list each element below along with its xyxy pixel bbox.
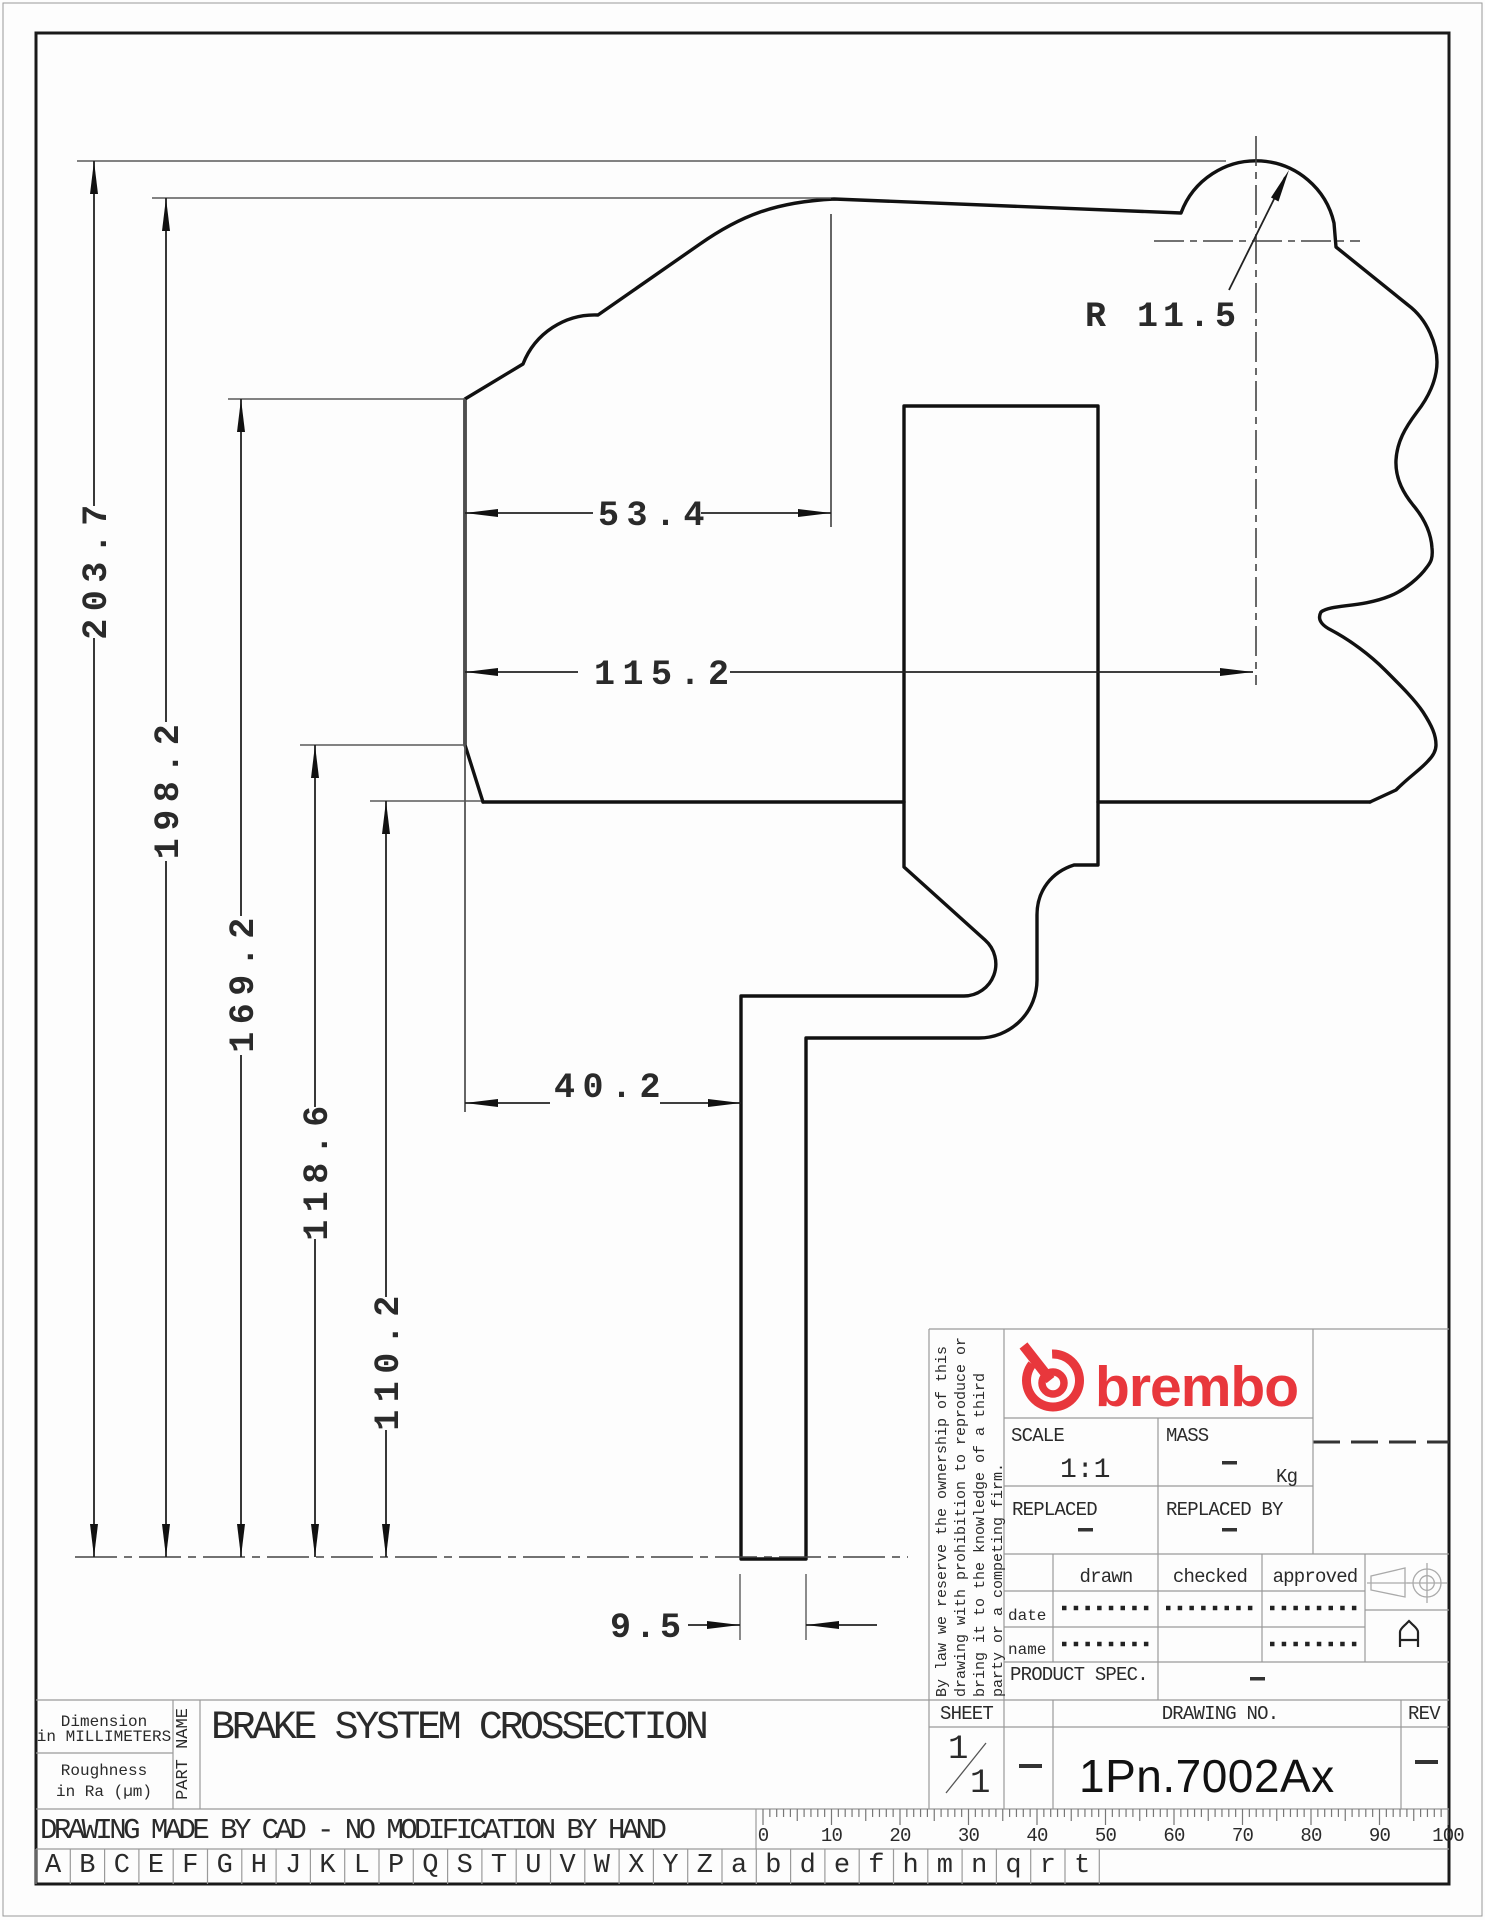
svg-text:203.7: 203.7 (77, 497, 117, 640)
svg-text:T: T (491, 1851, 507, 1881)
svg-text:By law we reserve the ownershi: By law we reserve the ownership of this (934, 1346, 951, 1697)
svg-text:E: E (148, 1851, 164, 1881)
svg-text:checked: checked (1173, 1566, 1247, 1588)
svg-text:Q: Q (422, 1851, 438, 1881)
svg-text:a: a (731, 1851, 747, 1881)
svg-text:REPLACED: REPLACED (1012, 1499, 1097, 1521)
svg-text:SCALE: SCALE (1011, 1425, 1064, 1447)
svg-text:PRODUCT SPEC.: PRODUCT SPEC. (1010, 1664, 1148, 1686)
svg-text:q: q (1005, 1851, 1021, 1881)
svg-text:drawn: drawn (1079, 1566, 1132, 1588)
svg-text:0: 0 (758, 1825, 769, 1847)
svg-text:L: L (354, 1851, 370, 1881)
svg-text:30: 30 (958, 1825, 980, 1847)
svg-text:90: 90 (1369, 1825, 1391, 1847)
svg-text:X: X (628, 1851, 644, 1881)
svg-text:MASS: MASS (1166, 1425, 1209, 1447)
svg-text:Y: Y (662, 1851, 678, 1881)
svg-text:100: 100 (1432, 1825, 1464, 1847)
svg-text:V: V (559, 1851, 576, 1881)
svg-text:PART NAME: PART NAME (174, 1708, 193, 1800)
svg-text:198.2: 198.2 (149, 717, 189, 860)
svg-text:9.5: 9.5 (610, 1608, 685, 1648)
svg-text:C: C (114, 1851, 130, 1881)
svg-text:1: 1 (970, 1765, 990, 1803)
svg-text:DRAWING MADE BY CAD - NO MODIF: DRAWING MADE BY CAD - NO MODIFICATION BY… (40, 1814, 666, 1847)
svg-text:53.4: 53.4 (598, 496, 712, 536)
svg-text:40: 40 (1026, 1825, 1048, 1847)
svg-text:1: 1 (948, 1731, 968, 1769)
svg-text:m: m (937, 1851, 953, 1881)
svg-text:name: name (1008, 1641, 1046, 1659)
svg-text:U: U (525, 1851, 541, 1881)
svg-text:H: H (251, 1851, 267, 1881)
svg-text:REV: REV (1408, 1703, 1441, 1725)
svg-text:10: 10 (821, 1825, 843, 1847)
svg-text:REPLACED BY: REPLACED BY (1166, 1499, 1284, 1521)
svg-text:bring it to the knowledge of a: bring it to the knowledge of a third (972, 1373, 989, 1697)
svg-text:80: 80 (1300, 1825, 1322, 1847)
svg-text:115.2: 115.2 (594, 655, 737, 695)
svg-text:t: t (1074, 1851, 1090, 1881)
svg-text:n: n (971, 1851, 987, 1881)
svg-text:Z: Z (697, 1851, 713, 1881)
svg-text:S: S (457, 1851, 473, 1881)
svg-text:brembo: brembo (1095, 1355, 1298, 1419)
svg-text:50: 50 (1095, 1825, 1117, 1847)
svg-text:F: F (182, 1851, 198, 1881)
svg-text:118.6: 118.6 (298, 1098, 338, 1241)
svg-text:169.2: 169.2 (224, 910, 264, 1053)
svg-text:1:1: 1:1 (1060, 1455, 1110, 1486)
svg-text:e: e (834, 1851, 850, 1881)
svg-text:40.2: 40.2 (554, 1068, 668, 1108)
svg-text:in Ra (µm): in Ra (µm) (56, 1783, 152, 1801)
svg-text:Roughness: Roughness (61, 1762, 147, 1780)
svg-text:J: J (285, 1851, 301, 1881)
svg-text:110.2: 110.2 (369, 1288, 409, 1431)
svg-text:B: B (79, 1851, 95, 1881)
svg-text:A: A (45, 1851, 62, 1881)
svg-text:G: G (217, 1851, 233, 1881)
svg-text:in MILLIMETERS: in MILLIMETERS (37, 1728, 171, 1746)
svg-text:d: d (800, 1851, 816, 1881)
svg-text:SHEET: SHEET (940, 1703, 993, 1725)
svg-text:1Pn.7002Ax: 1Pn.7002Ax (1079, 1750, 1335, 1802)
svg-text:W: W (594, 1851, 611, 1881)
svg-text:Kg: Kg (1276, 1466, 1297, 1488)
svg-text:party or a competing firm.: party or a competing firm. (990, 1463, 1007, 1697)
svg-text:20: 20 (889, 1825, 911, 1847)
svg-text:P: P (388, 1851, 404, 1881)
svg-text:K: K (319, 1851, 336, 1881)
svg-text:R 11.5: R 11.5 (1085, 297, 1241, 337)
svg-text:f: f (868, 1851, 884, 1881)
svg-text:BRAKE SYSTEM CROSSECTION: BRAKE SYSTEM CROSSECTION (211, 1706, 706, 1751)
svg-text:r: r (1040, 1851, 1056, 1881)
svg-text:drawing with prohibition to re: drawing with prohibition to reproduce or (953, 1337, 970, 1697)
svg-text:date: date (1008, 1607, 1046, 1625)
svg-text:60: 60 (1163, 1825, 1185, 1847)
svg-text:approved: approved (1273, 1566, 1358, 1588)
svg-text:b: b (765, 1851, 781, 1881)
svg-text:h: h (902, 1851, 918, 1881)
svg-text:DRAWING NO.: DRAWING NO. (1162, 1703, 1279, 1725)
svg-text:70: 70 (1232, 1825, 1254, 1847)
